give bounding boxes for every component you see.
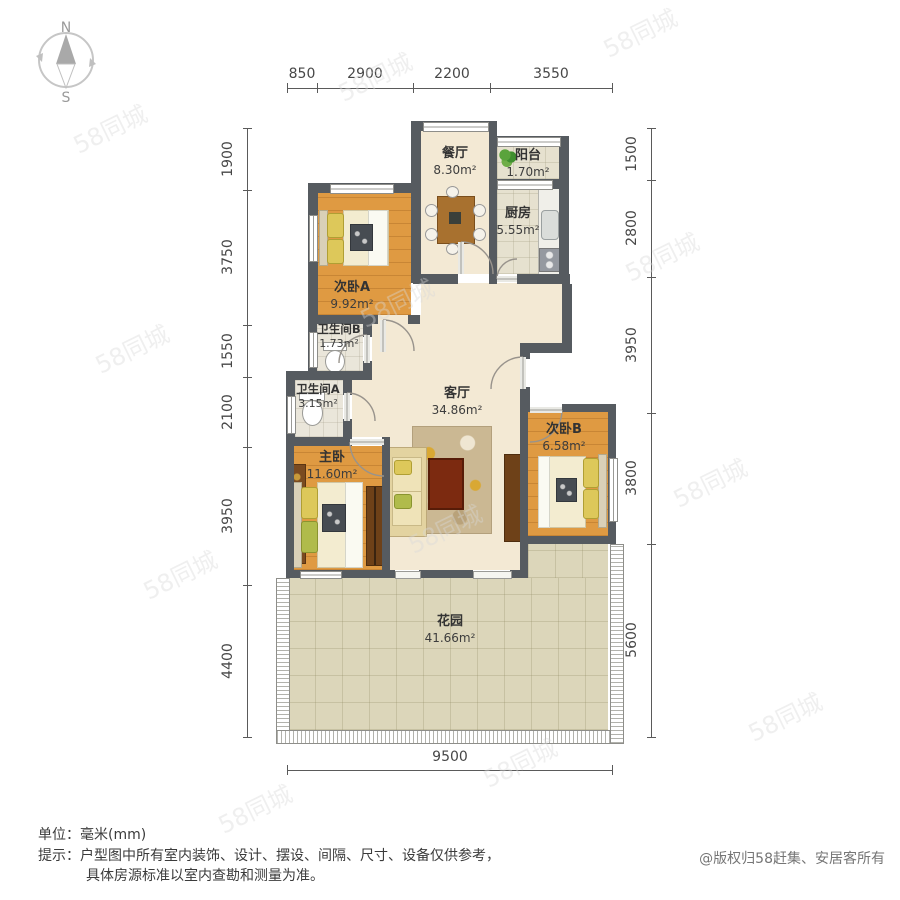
dim-bottom-0: 9500 (420, 749, 480, 765)
dim-line-bottom (287, 770, 612, 771)
kitchen-stove (539, 248, 560, 272)
bathB-toilet (325, 350, 345, 373)
master-sheet (345, 482, 363, 568)
garden-floor (288, 578, 608, 730)
dim-line-top (287, 88, 612, 89)
wall (559, 136, 569, 284)
dim-line-left (247, 128, 248, 737)
compass-south-label: S (62, 90, 71, 104)
wall (382, 437, 390, 578)
dim-tick (647, 413, 656, 414)
dim-tick (243, 737, 252, 738)
dim-left-5: 4400 (220, 631, 236, 691)
living-floor (421, 283, 562, 315)
room-name: 厨房 (505, 206, 531, 221)
dim-tick (243, 377, 252, 378)
room-name: 花园 (437, 614, 463, 629)
dim-tick (413, 83, 414, 93)
unit-note: 单位：毫米(mm) (38, 824, 146, 844)
wall (408, 315, 420, 324)
dim-right-1: 2800 (624, 198, 640, 258)
room-label-living: 客厅 34.86m² (417, 386, 497, 418)
dim-tick (647, 277, 656, 278)
master-pillow (301, 487, 318, 519)
floorplan-page: 58同城 58同城 58同城 58同城 58同城 58同城 58同城 58同城 … (0, 0, 900, 900)
garden-fence (610, 544, 624, 744)
dim-tick (243, 447, 252, 448)
room-label-bedroomB: 次卧B 6.58m² (524, 422, 604, 454)
wall (520, 536, 528, 578)
room-name: 次卧A (334, 280, 370, 295)
dining-centerpiece (449, 212, 461, 224)
dim-right-0: 1500 (624, 124, 640, 184)
room-name: 客厅 (444, 386, 470, 401)
dining-chair (446, 243, 459, 255)
room-area: 9.92m² (312, 297, 392, 313)
room-name: 次卧B (546, 422, 582, 437)
dim-right-4: 5600 (624, 610, 640, 670)
watermark: 58同城 (88, 315, 174, 381)
room-label-bathB: 卫生间B 1.73m² (300, 322, 378, 351)
dim-right-3: 3800 (624, 448, 640, 508)
room-label-master: 主卧 11.60m² (292, 450, 372, 482)
sofa-pillow (394, 460, 412, 475)
window (330, 184, 394, 194)
dim-tick (647, 128, 656, 129)
window (497, 137, 561, 147)
wall (419, 570, 473, 578)
compass-north-label: N (61, 20, 71, 36)
wall (286, 371, 372, 380)
room-name: 餐厅 (442, 146, 468, 161)
dim-tick (612, 83, 613, 93)
room-label-kitchen: 厨房 5.55m² (478, 206, 558, 238)
dim-top-1: 2900 (335, 66, 395, 82)
dining-chair (425, 204, 438, 217)
room-area: 1.70m² (496, 165, 560, 181)
bedB-pillow (583, 489, 599, 519)
tip-note-line2: 具体房源标准以室内查勘和测量为准。 (86, 865, 324, 885)
room-area: 11.60m² (292, 467, 372, 483)
dim-left-2: 1550 (220, 321, 236, 381)
room-label-dining: 餐厅 8.30m² (415, 146, 495, 178)
garden-fence (276, 578, 290, 744)
room-area: 8.30m² (415, 163, 495, 179)
room-label-garden: 花园 41.66m² (410, 614, 490, 646)
room-label-bathA: 卫生间A 3.15m² (279, 382, 357, 411)
window (300, 571, 342, 579)
room-label-bedroomA: 次卧A 9.92m² (312, 280, 392, 312)
dim-tick (647, 737, 656, 738)
dining-chair (425, 228, 438, 241)
bedA-pillow (327, 213, 344, 238)
wall (286, 437, 350, 446)
room-area: 41.66m² (410, 631, 490, 647)
wall (517, 274, 570, 284)
wall (520, 387, 530, 404)
garden-fence (276, 730, 624, 744)
wall (413, 274, 458, 284)
room-label-balcony: 阳台 1.70m² (496, 148, 560, 180)
dim-left-4: 3950 (220, 486, 236, 546)
dim-tick (243, 128, 252, 129)
room-name: 主卧 (319, 450, 345, 465)
bedA-throw (350, 224, 373, 251)
dim-tick (243, 325, 252, 326)
dim-tick (647, 544, 656, 545)
bedB-headboard (598, 454, 607, 528)
room-name: 阳台 (515, 148, 541, 163)
tip-note-line1: 提示：户型图中所有室内装饰、设计、摆设、间隔、尺寸、设备仅供参考， (38, 845, 500, 865)
window (497, 180, 553, 190)
bedA-pillow (327, 239, 344, 264)
window (423, 122, 489, 132)
living-floor (372, 315, 562, 343)
dim-left-0: 1900 (220, 129, 236, 189)
dim-top-2: 2200 (422, 66, 482, 82)
room-area: 6.58m² (524, 439, 604, 455)
master-throw (322, 504, 346, 532)
watermark: 58同城 (666, 449, 752, 515)
sofa-pillow (394, 494, 412, 509)
dim-tick (243, 190, 252, 191)
bedB-pillow (583, 458, 599, 488)
room-name: 卫生间A (296, 382, 339, 396)
watermark: 58同城 (596, 0, 682, 64)
dim-right-2: 3950 (624, 315, 640, 375)
wall (520, 353, 530, 359)
master-pillow (301, 521, 318, 553)
coffee-table (428, 458, 464, 510)
room-area: 5.55m² (478, 223, 558, 239)
bedB-throw (556, 478, 577, 502)
dim-top-3: 3550 (521, 66, 581, 82)
wall (520, 343, 572, 353)
dim-tick (490, 83, 491, 93)
compass-icon: N S (24, 12, 108, 104)
dim-tick (287, 83, 288, 93)
wall (520, 536, 616, 544)
watermark: 58同城 (741, 683, 827, 749)
room-area: 1.73m² (300, 337, 378, 351)
dim-tick (612, 765, 613, 775)
garden-door (395, 571, 421, 579)
living-floor (372, 343, 520, 379)
room-area: 34.86m² (417, 403, 497, 419)
dim-tick (287, 765, 288, 775)
dim-tick (317, 83, 318, 93)
wall (489, 274, 497, 284)
dining-chair (446, 186, 459, 198)
dim-line-right (651, 128, 652, 737)
watermark: 58同城 (66, 95, 152, 161)
copyright-note: @版权归58赶集、安居客所有 (555, 848, 885, 868)
dim-left-3: 2100 (220, 382, 236, 442)
watermark: 58同城 (211, 775, 297, 841)
window (309, 215, 318, 262)
room-area: 3.15m² (279, 397, 357, 411)
dim-top-0: 850 (272, 66, 332, 82)
dim-tick (647, 180, 656, 181)
bedB-sheet (538, 456, 550, 528)
garden-door (473, 571, 512, 579)
window (609, 458, 618, 522)
dim-tick (243, 585, 252, 586)
watermark: 58同城 (136, 541, 222, 607)
dim-left-1: 3750 (220, 227, 236, 287)
garden-floor (528, 544, 608, 578)
room-name: 卫生间B (317, 322, 360, 336)
wall (520, 404, 530, 412)
